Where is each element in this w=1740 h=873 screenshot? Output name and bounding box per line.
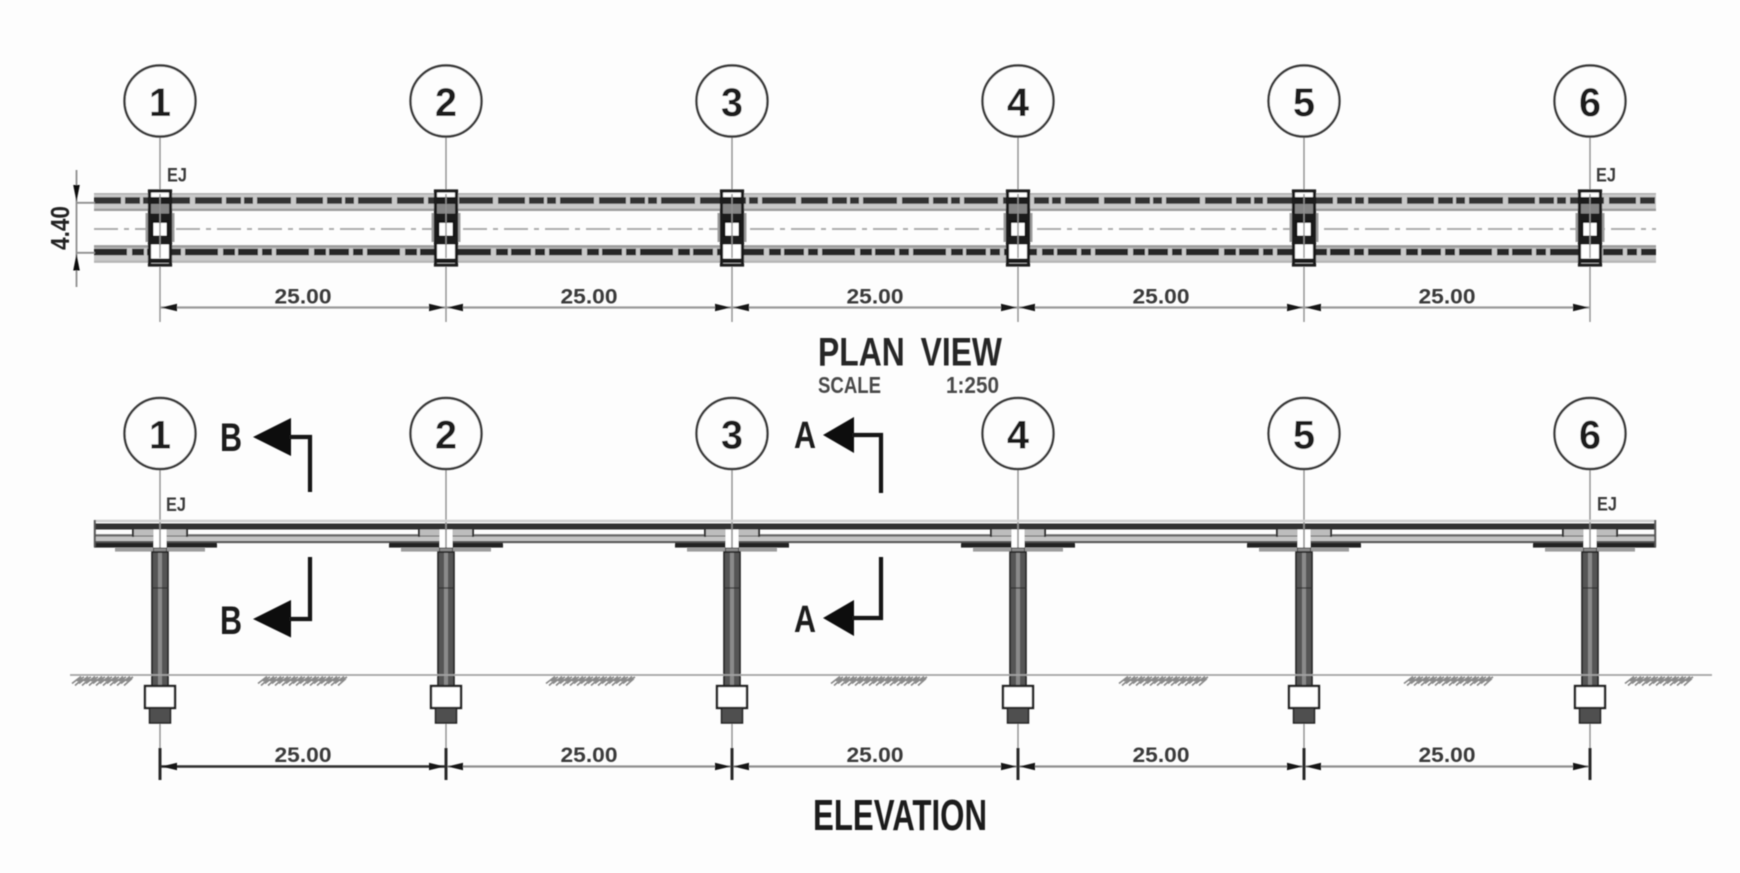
svg-text:EJ: EJ [1597,495,1617,516]
svg-text:25.00: 25.00 [561,744,618,767]
svg-text:1:250: 1:250 [946,372,999,398]
svg-text:25.00: 25.00 [561,286,618,309]
svg-text:3: 3 [721,81,743,125]
svg-text:2: 2 [435,414,457,458]
svg-text:EJ: EJ [167,166,187,187]
svg-text:5: 5 [1293,81,1315,125]
svg-text:SCALE: SCALE [818,372,881,398]
svg-text:A: A [794,599,816,641]
svg-text:25.00: 25.00 [847,744,904,767]
svg-text:2: 2 [435,81,457,125]
svg-text:EJ: EJ [166,495,186,516]
svg-text:PLAN VIEW: PLAN VIEW [818,331,1002,375]
svg-text:3: 3 [721,414,743,458]
svg-text:B: B [220,599,242,643]
svg-text:4: 4 [1007,81,1030,125]
svg-text:4.40: 4.40 [45,206,75,250]
svg-text:5: 5 [1293,414,1315,458]
svg-text:25.00: 25.00 [275,286,332,309]
svg-text:4: 4 [1007,414,1030,458]
svg-text:25.00: 25.00 [1133,286,1190,309]
svg-text:25.00: 25.00 [1419,286,1476,309]
svg-text:1: 1 [149,81,171,125]
svg-text:EJ: EJ [1596,166,1616,187]
svg-text:B: B [220,416,242,460]
svg-text:A: A [794,415,816,457]
svg-text:25.00: 25.00 [1419,744,1476,767]
svg-text:1: 1 [149,414,171,458]
svg-text:6: 6 [1579,414,1601,458]
svg-text:ELEVATION: ELEVATION [813,791,987,840]
svg-text:25.00: 25.00 [1133,744,1190,767]
svg-text:25.00: 25.00 [847,286,904,309]
svg-text:6: 6 [1579,81,1601,125]
svg-text:25.00: 25.00 [275,744,332,767]
